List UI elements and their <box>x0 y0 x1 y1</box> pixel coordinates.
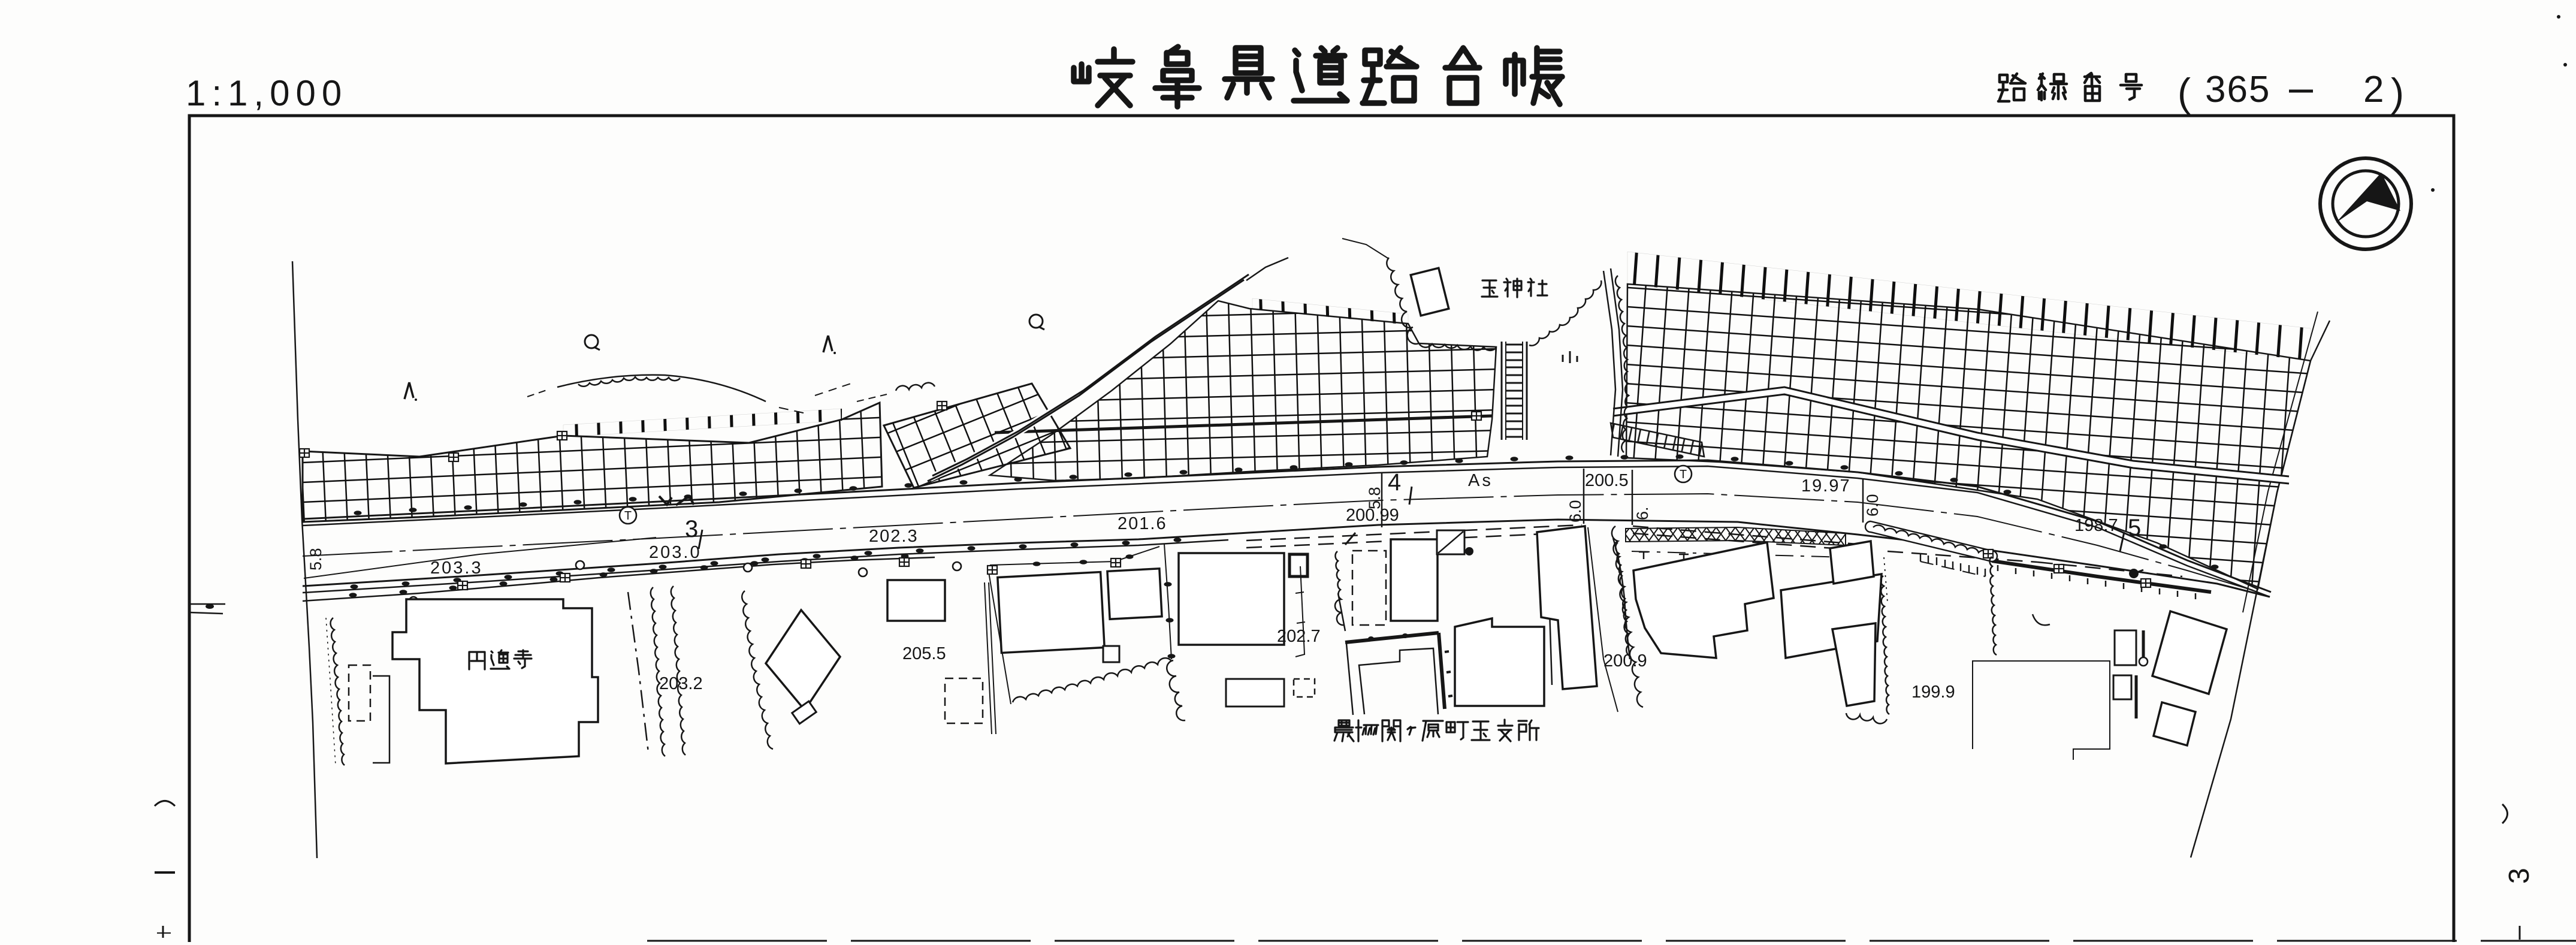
svg-text:200.99: 200.99 <box>1346 506 1399 525</box>
svg-text:6.: 6. <box>1633 506 1651 520</box>
svg-text:6.0: 6.0 <box>1864 494 1882 517</box>
svg-text:202.7: 202.7 <box>1277 627 1321 646</box>
svg-text:199.9: 199.9 <box>1911 683 1955 702</box>
svg-text:365: 365 <box>2205 69 2270 110</box>
svg-text:202.3: 202.3 <box>869 527 919 546</box>
svg-text:T: T <box>1680 468 1687 481</box>
svg-text:5.8: 5.8 <box>307 548 325 570</box>
svg-text:2: 2 <box>2363 69 2384 110</box>
svg-text:205.5: 205.5 <box>902 644 946 663</box>
svg-text:As: As <box>1468 471 1493 490</box>
svg-text:203.0: 203.0 <box>649 543 702 562</box>
svg-text:5: 5 <box>2128 515 2141 541</box>
svg-text:3: 3 <box>685 516 698 542</box>
svg-text:6.0: 6.0 <box>1566 500 1584 523</box>
svg-text:(: ( <box>2178 70 2191 114</box>
svg-text:203.3: 203.3 <box>430 558 483 578</box>
svg-text:203.2: 203.2 <box>659 674 703 693</box>
svg-text:T: T <box>624 509 632 523</box>
svg-text:4: 4 <box>1388 469 1401 496</box>
svg-text:201.6: 201.6 <box>1118 514 1167 533</box>
svg-text:): ) <box>2391 70 2404 114</box>
svg-text:19.97: 19.97 <box>1801 476 1851 496</box>
svg-text:1:1,000: 1:1,000 <box>186 73 348 113</box>
svg-text:200.9: 200.9 <box>1603 651 1647 671</box>
svg-text:198.7: 198.7 <box>2074 516 2118 535</box>
svg-text:200.5: 200.5 <box>1585 471 1629 490</box>
svg-text:3: 3 <box>2503 868 2535 884</box>
